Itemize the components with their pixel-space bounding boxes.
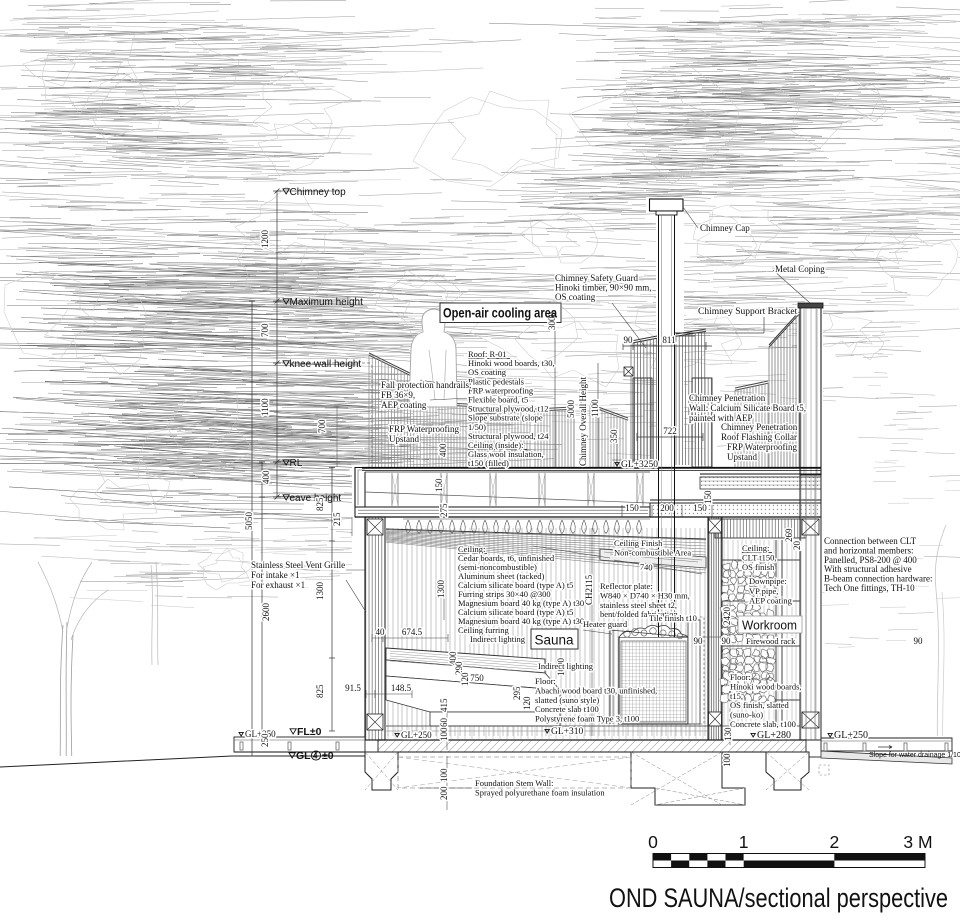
svg-text:Sprayed polyurethane foam insu: Sprayed polyurethane foam insulation [475,788,605,798]
svg-text:Sauna: Sauna [534,633,574,648]
svg-text:GL+250: GL+250 [401,730,432,740]
svg-text:811: 811 [662,335,675,345]
svg-text:90: 90 [694,636,704,646]
svg-text:Stainless Steel Vent Grille: Stainless Steel Vent Grille [251,560,345,570]
svg-text:700: 700 [260,323,270,337]
svg-text:3 M: 3 M [903,832,932,852]
svg-text:5050: 5050 [244,512,254,531]
svg-text:150: 150 [625,503,639,513]
svg-text:90: 90 [914,636,924,646]
svg-text:200: 200 [439,786,449,800]
svg-text:Tech One fittings, TH-10: Tech One fittings, TH-10 [824,583,915,593]
svg-text:GL+250: GL+250 [834,730,868,741]
svg-text:148.5: 148.5 [391,683,412,693]
svg-text:825: 825 [315,497,325,511]
svg-text:Foundation Stem Wall:: Foundation Stem Wall: [475,778,554,788]
svg-text:FRP Waterproofing: FRP Waterproofing [389,424,460,434]
svg-text:RL: RL [290,458,303,469]
svg-text:GL+3250: GL+3250 [621,460,658,470]
svg-text:Polystyrene foam Type 3, t100: Polystyrene foam Type 3, t100 [535,714,639,724]
svg-text:1100: 1100 [260,398,270,416]
svg-text:Indirect lighting: Indirect lighting [470,634,526,644]
svg-text:40: 40 [376,627,386,637]
svg-text:Concrete slab, t100: Concrete slab, t100 [730,719,796,729]
svg-text:OND SAUNA/sectional perspectiv: OND SAUNA/sectional perspective [609,883,948,913]
svg-text:674.5: 674.5 [402,627,423,637]
svg-text:130: 130 [723,727,733,741]
svg-text:Hinoki timber, 90×90 mm,: Hinoki timber, 90×90 mm, [555,283,651,293]
svg-text:Upstand: Upstand [727,452,757,462]
svg-text:±0: ±0 [322,750,334,762]
svg-text:150: 150 [703,490,713,504]
svg-text:Upstand: Upstand [389,434,419,444]
svg-text:740: 740 [640,562,653,573]
svg-text:120: 120 [460,672,470,686]
svg-text:4: 4 [313,752,318,761]
svg-text:90: 90 [624,335,634,345]
svg-text:CH2115: CH2115 [584,574,594,605]
svg-text:Metal Coping: Metal Coping [775,264,825,274]
svg-text:2420: 2420 [722,607,732,626]
svg-text:100: 100 [722,753,732,767]
svg-text:VP pipe,: VP pipe, [749,586,778,596]
svg-text:750: 750 [470,673,484,683]
svg-text:GL+310: GL+310 [551,727,584,737]
svg-text:Chimney Safety Guard: Chimney Safety Guard [555,273,638,283]
svg-text:FB 36×9,: FB 36×9, [381,390,415,400]
svg-text:Chimney Penetration: Chimney Penetration [689,393,766,403]
svg-text:Wall: Calcium Silicate Board t: Wall: Calcium Silicate Board t5, [689,403,806,413]
svg-text:150: 150 [693,503,707,513]
svg-text:OS finish: OS finish [742,562,775,572]
svg-text:Downpipe:: Downpipe: [749,576,787,586]
svg-text:1100: 1100 [590,399,600,417]
svg-text:Chimney Cap: Chimney Cap [700,223,750,233]
svg-text:1: 1 [739,832,749,852]
svg-text:100: 100 [439,768,449,782]
svg-text:Non-combustible Area: Non-combustible Area [614,547,691,557]
svg-text:1300: 1300 [436,580,446,599]
svg-text:Chimney Support Bracket: Chimney Support Bracket [698,307,798,317]
svg-text:AEP coating: AEP coating [749,596,793,606]
svg-text:1300: 1300 [315,582,325,601]
svg-text:400: 400 [261,470,271,484]
svg-text:Heater guard: Heater guard [583,619,628,629]
svg-text:Maximum height: Maximum height [290,297,364,308]
svg-text:OS coating: OS coating [555,292,596,302]
svg-text:Chimney Penetration: Chimney Penetration [721,422,798,432]
svg-text:FL±0: FL±0 [297,726,322,738]
svg-text:1200: 1200 [260,230,270,249]
svg-text:Chimney top: Chimney top [290,187,347,198]
svg-text:Firewood rack: Firewood rack [746,636,796,646]
svg-text:350: 350 [609,429,619,443]
svg-text:269: 269 [784,528,794,542]
svg-text:2600: 2600 [261,603,271,622]
svg-text:415: 415 [439,698,449,712]
svg-text:knee wall height: knee wall height [290,359,362,370]
svg-text:120: 120 [522,696,532,710]
svg-text:Chimney Overall Height: Chimney Overall Height [578,377,588,466]
svg-text:5000: 5000 [566,400,576,419]
svg-text:250: 250 [260,733,270,747]
svg-text:825: 825 [315,684,325,698]
svg-text:215: 215 [332,512,342,526]
svg-text:Open-air cooling area: Open-air cooling area [443,306,557,321]
svg-text:100: 100 [439,727,449,741]
svg-text:700: 700 [317,419,327,433]
svg-text:t150 (filled): t150 (filled) [468,458,509,468]
svg-text:Tile finish t10: Tile finish t10 [649,613,697,623]
svg-text:Workroom: Workroom [742,618,797,633]
svg-text:0: 0 [648,832,658,852]
svg-text:Indirect lighting: Indirect lighting [538,661,594,671]
svg-text:GL: GL [296,750,311,762]
svg-text:150: 150 [434,478,444,492]
svg-text:400: 400 [438,443,448,457]
svg-text:2: 2 [829,832,839,852]
svg-text:Fall protection handrails:: Fall protection handrails: [381,380,471,390]
svg-text:295: 295 [512,686,522,700]
svg-text:For intake ×1: For intake ×1 [251,570,300,580]
svg-text:GL+280: GL+280 [757,730,791,741]
svg-text:For exhaust ×1: For exhaust ×1 [251,580,305,590]
svg-text:AEP coating: AEP coating [381,400,427,410]
svg-text:90: 90 [722,636,732,646]
svg-text:722: 722 [663,426,677,436]
svg-text:Slope for water drainage 1/100: Slope for water drainage 1/100 [869,752,960,759]
svg-text:91.5: 91.5 [345,683,361,693]
svg-text:200: 200 [660,503,674,513]
svg-text:20: 20 [792,541,802,551]
svg-text:60: 60 [439,718,449,728]
svg-text:FRP Waterproofing: FRP Waterproofing [727,442,798,452]
svg-text:275: 275 [439,503,449,517]
svg-text:Roof Flashing Collar: Roof Flashing Collar [721,432,797,442]
